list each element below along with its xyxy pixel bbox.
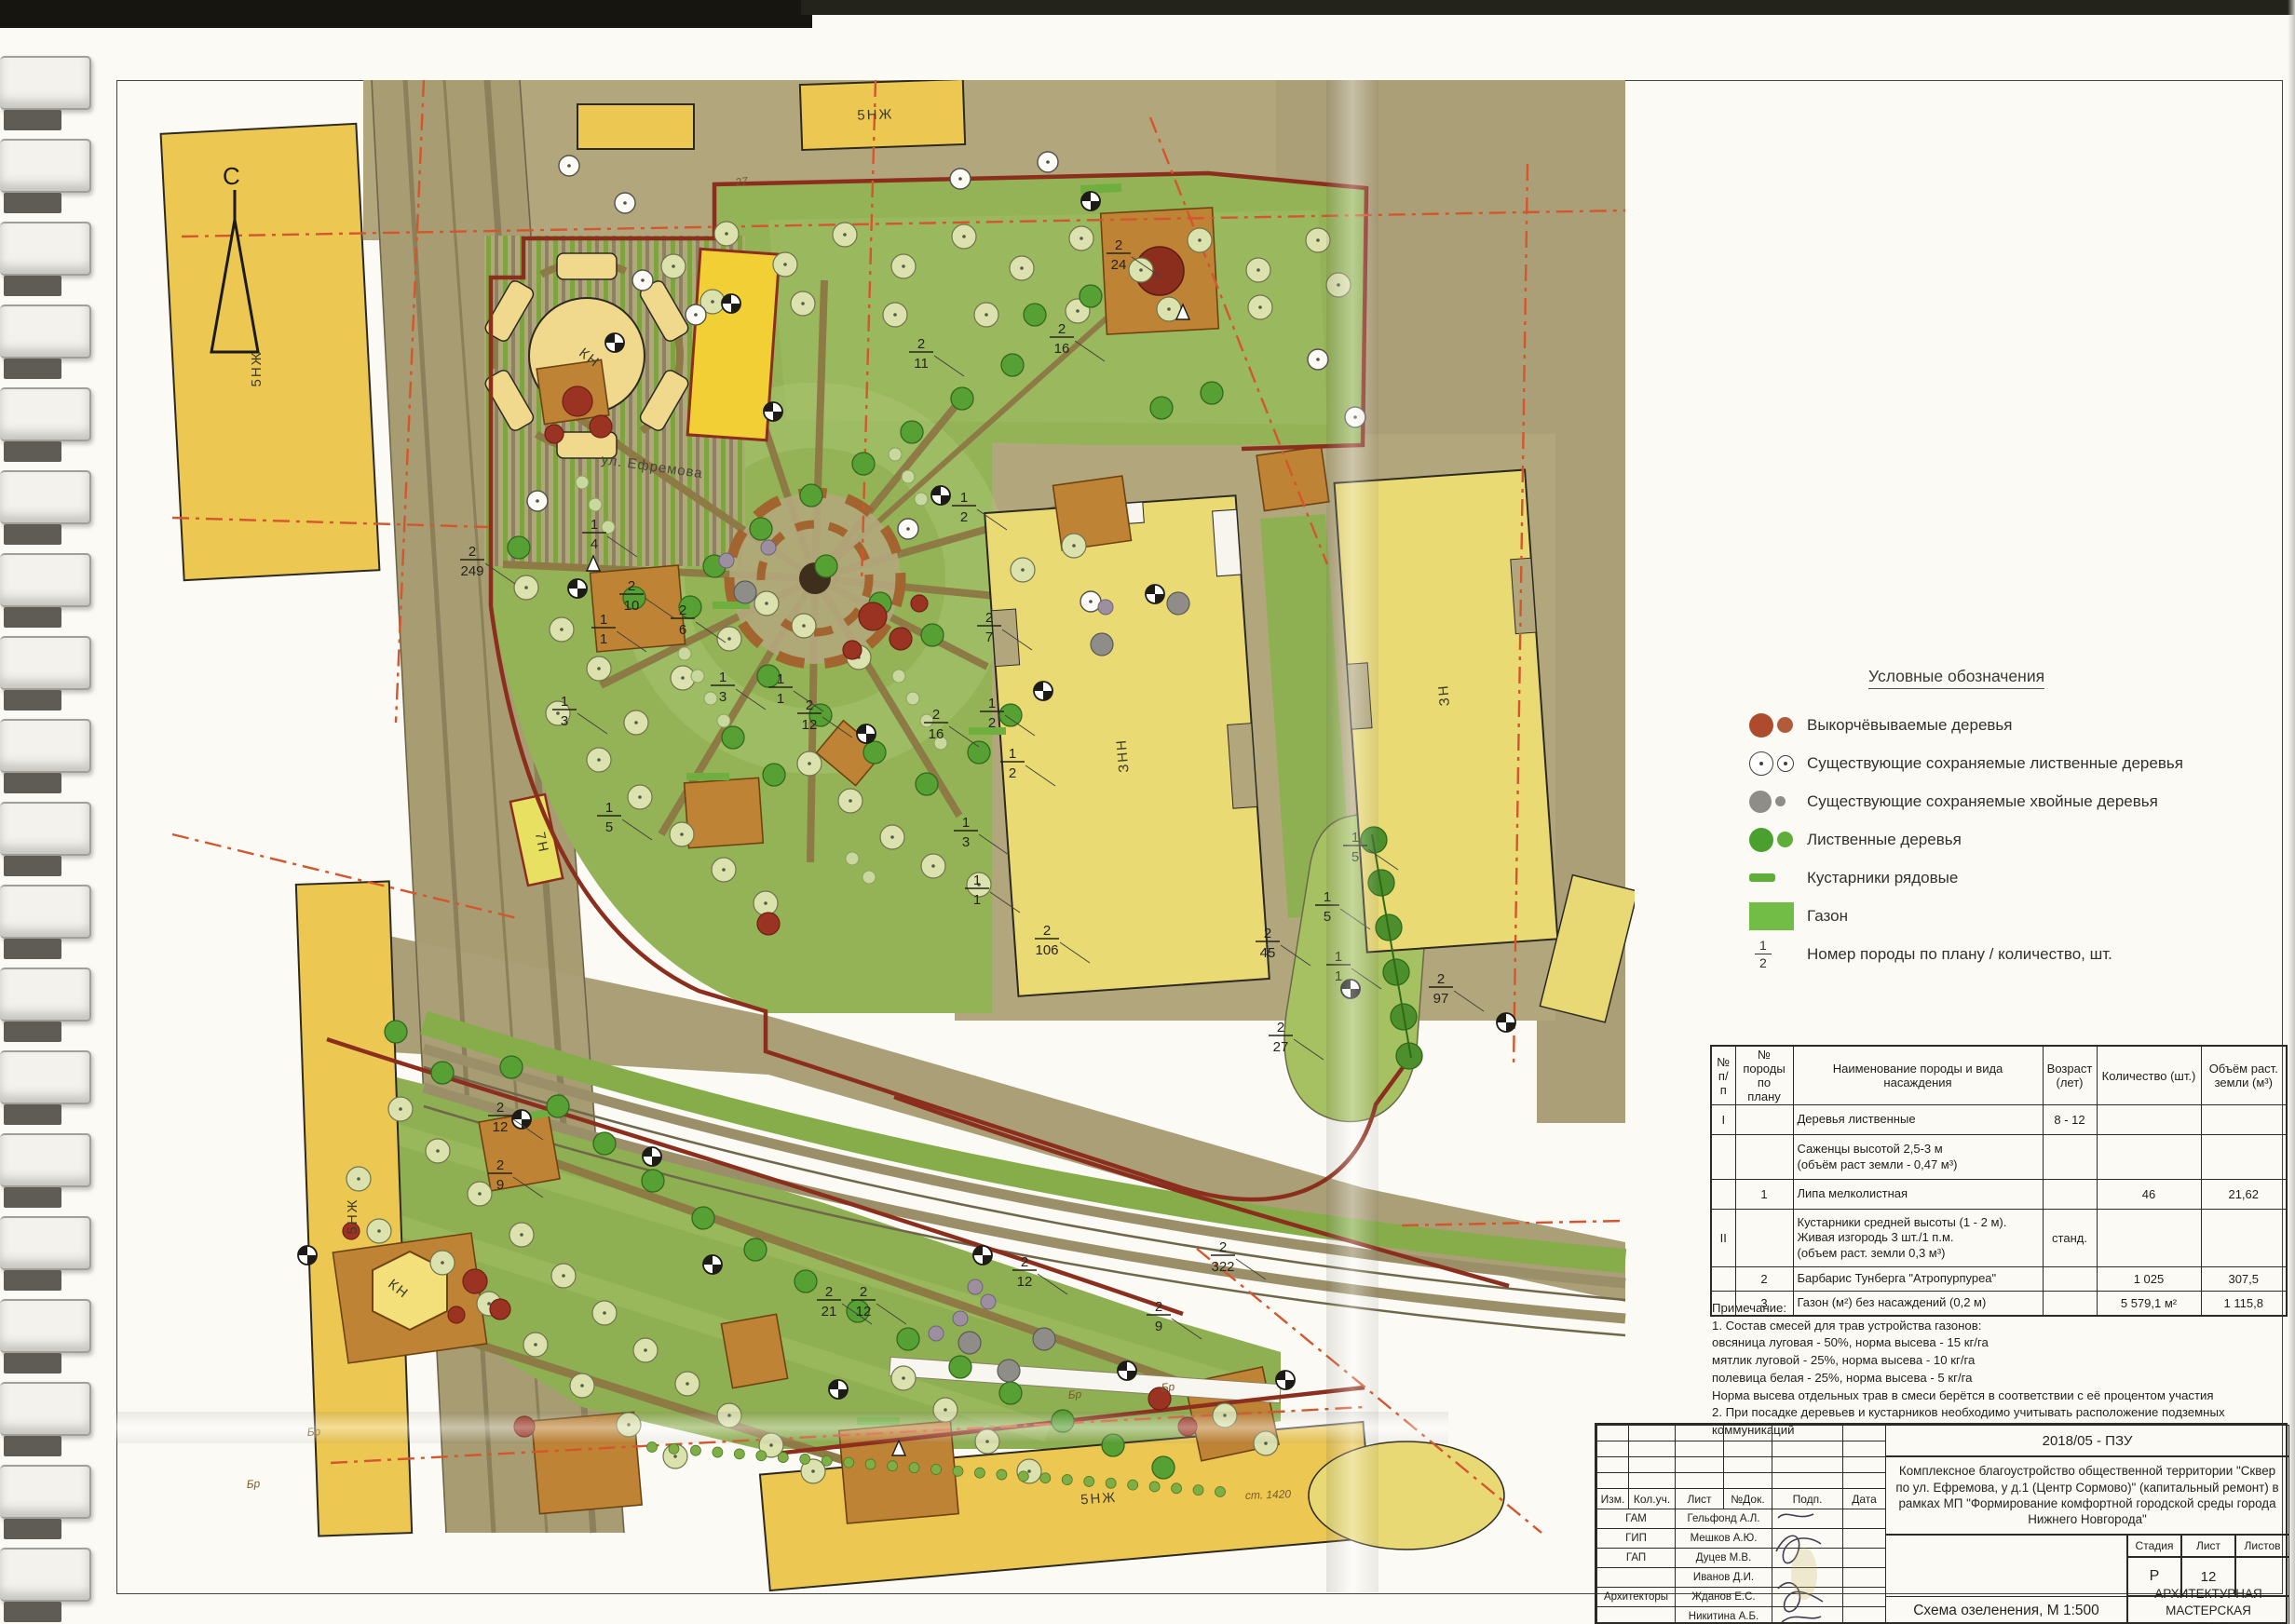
building-label: 5НЖ (1080, 1490, 1118, 1509)
benchmark-symbol (857, 724, 876, 743)
comb-loop (0, 968, 91, 1022)
table-cell: 21,62 (2201, 1180, 2287, 1210)
svg-text:1: 1 (605, 800, 613, 816)
hedge-symbol (909, 1463, 919, 1473)
deciduous-tree-symbol (385, 1021, 407, 1043)
table-cell (1711, 1135, 1735, 1180)
hedge-symbol (1128, 1480, 1138, 1490)
svg-text:2: 2 (960, 509, 968, 525)
svg-text:2: 2 (985, 610, 993, 626)
deciduous-tree-symbol (999, 704, 1022, 726)
deciduous-tree-symbol (1080, 285, 1102, 307)
benchmark-symbol (298, 1246, 317, 1265)
table-cell (2043, 1267, 2097, 1292)
table-cell: 307,5 (2201, 1267, 2287, 1292)
table-cell: 1 025 (2097, 1267, 2201, 1292)
bush-symbol (889, 448, 902, 461)
deciduous-tree-symbol (593, 1132, 616, 1155)
hedge-symbol (1172, 1483, 1182, 1494)
building-label: 5НЖ (857, 106, 894, 123)
table-cell (1735, 1135, 1793, 1180)
removed-trees-icon (1749, 713, 1807, 738)
sheet-label: Лист (2181, 1535, 2235, 1557)
deciduous-tree-symbol (508, 536, 530, 559)
empty-cell (1629, 1441, 1676, 1457)
hedge-symbol (1215, 1487, 1226, 1497)
table-cell: Кустарники средней высоты (1 - 2 м). Жив… (1793, 1210, 2043, 1267)
coniferous-tree-symbol (1167, 592, 1189, 615)
svg-text:21: 21 (822, 1304, 837, 1319)
shrub-row-icon (1749, 873, 1807, 882)
comb-loop (0, 1050, 91, 1104)
sign-date-cell (1843, 1568, 1886, 1588)
comb-slot (4, 1104, 61, 1125)
deciduous-tree-symbol (951, 387, 973, 410)
removed-tree-symbol (463, 1269, 487, 1293)
legend-title: Условные обозначения (1868, 667, 2044, 689)
notes-title: Примечание: (1712, 1300, 2247, 1318)
deciduous-tree-symbol (800, 484, 822, 507)
deciduous-tree-symbol (750, 518, 772, 540)
deciduous-tree-symbol (901, 421, 923, 443)
deciduous-tree-symbol (763, 764, 785, 786)
hedge-symbol (800, 1454, 810, 1464)
comb-slot (4, 1436, 61, 1456)
benchmark-symbol (931, 486, 950, 505)
comb-loop (0, 139, 91, 193)
column-header: Количество (шт.) (2097, 1046, 2201, 1105)
svg-text:2: 2 (679, 602, 686, 618)
column-header: № п/п (1711, 1046, 1735, 1105)
deciduous-tree-symbol (949, 1356, 971, 1378)
legend: Условные обозначения Выкорчёвываемые дер… (1749, 667, 2295, 973)
sign-column-header: Лист (1676, 1489, 1724, 1509)
benchmark-symbol (512, 1110, 531, 1129)
comb-slot (4, 359, 61, 379)
removed-tree-symbol (859, 602, 887, 630)
legend-items: Выкорчёвываемые деревьяСуществующие сохр… (1749, 706, 2295, 973)
sign-name: Иванов Д.И. (1676, 1568, 1772, 1588)
note-line: полевица белая - 25%, норма высева - 5 к… (1712, 1370, 2247, 1387)
empty-cell (1597, 1426, 1629, 1441)
legend-item-label: Газон (1807, 907, 1848, 926)
deciduous-tree-symbol (863, 741, 886, 764)
hedge-symbol (734, 1449, 744, 1459)
table-cell: Барбарис Тунберга "Атропурпуреа" (1793, 1267, 2043, 1292)
deciduous-tree-symbol (921, 624, 944, 646)
table-cell: 8 - 12 (2043, 1105, 2097, 1135)
benchmark-symbol (1081, 192, 1100, 210)
svg-text:27: 27 (1273, 1039, 1289, 1055)
bush-symbol (704, 692, 717, 705)
comb-slot (4, 1353, 61, 1374)
legend-item: Существующие сохраняемые хвойные деревья (1749, 782, 2295, 820)
lawn-icon (1749, 902, 1807, 930)
removed-tree-symbol (911, 595, 928, 612)
svg-text:1: 1 (973, 892, 981, 908)
benchmark-symbol (1118, 1361, 1136, 1380)
table-cell: Саженцы высотой 2,5-3 м (объём раст земл… (1793, 1135, 2043, 1180)
benchmark-symbol (1497, 1013, 1515, 1032)
bush-symbol (691, 670, 704, 683)
hedge-symbol (997, 1469, 1007, 1480)
plan-annotation: Бр (1067, 1387, 1082, 1401)
table-cell: I (1711, 1105, 1735, 1135)
table-cell: станд. (2043, 1210, 2097, 1267)
svg-text:1: 1 (962, 815, 970, 831)
bush-symbol (602, 521, 615, 534)
fold-crease (116, 1412, 1448, 1443)
hedge-symbol (1193, 1485, 1203, 1495)
empty-cell (1843, 1457, 1886, 1473)
legend-item-label: Существующие сохраняемые лиственные дере… (1807, 754, 2183, 773)
bush-symbol (953, 1311, 968, 1326)
comb-loop (0, 1216, 91, 1270)
svg-text:322: 322 (1211, 1259, 1234, 1275)
column-header: № породы по плану (1735, 1046, 1793, 1105)
sign-date-cell (1843, 1549, 1886, 1568)
drawing-title: Схема озеленения, М 1:500 (1885, 1596, 2127, 1624)
benchmark-symbol (605, 333, 624, 352)
svg-text:2: 2 (628, 578, 635, 594)
svg-text:45: 45 (1260, 945, 1276, 961)
table-cell (2201, 1105, 2287, 1135)
sign-date-cell (1843, 1529, 1886, 1549)
benchmark-symbol (703, 1255, 722, 1274)
benchmark-symbol (1146, 585, 1164, 603)
comb-slot (4, 276, 61, 296)
table-cell (1735, 1210, 1793, 1267)
comb-loop (0, 885, 91, 939)
hedge-symbol (1149, 1482, 1160, 1492)
removed-tree-symbol (843, 641, 862, 659)
hedge-symbol (1084, 1476, 1094, 1486)
benchmark-symbol (568, 579, 587, 598)
empty-cell (1597, 1457, 1629, 1473)
empty-cell (1843, 1426, 1886, 1441)
svg-text:1: 1 (561, 694, 568, 710)
coniferous-tree-symbol (998, 1360, 1020, 1382)
empty-cell (1629, 1473, 1676, 1489)
comb-loop (0, 553, 91, 607)
hedge-symbol (778, 1453, 788, 1463)
empty-cell (1676, 1473, 1724, 1489)
bush-symbol (678, 647, 691, 660)
deciduous-tree-symbol (1201, 382, 1223, 404)
deciduous-tree-symbol (547, 1095, 569, 1117)
table-row: 2Барбарис Тунберга "Атропурпуреа"1 02530… (1711, 1267, 2287, 1292)
hedge-symbol (713, 1447, 723, 1457)
comb-slot (4, 1519, 61, 1539)
benchmark-symbol (722, 294, 740, 313)
table-cell (1711, 1267, 1735, 1292)
svg-text:10: 10 (624, 598, 640, 614)
svg-text:3: 3 (962, 834, 970, 850)
svg-text:2: 2 (932, 707, 940, 723)
deciduous-tree-symbol (500, 1056, 523, 1078)
empty-cell (1629, 1457, 1676, 1473)
organization: АРХИТЕКТУРНАЯ МАСТЕРСКАЯ ННГАСУ (2127, 1596, 2289, 1624)
svg-text:7: 7 (985, 629, 993, 645)
project-description: Комплексное благоустройство общественной… (1885, 1456, 2289, 1535)
deciduous-tree-symbol (999, 1382, 1022, 1404)
comb-loop (0, 802, 91, 856)
empty-cell (1676, 1457, 1724, 1473)
comb-slot (4, 1022, 61, 1042)
legend-item: 12Номер породы по плану / количество, шт… (1749, 935, 2295, 973)
deciduous-tree-symbol (642, 1170, 664, 1192)
comb-slot (4, 1187, 61, 1208)
scanner-edge-strip (801, 0, 2295, 15)
empty-cell (1772, 1457, 1843, 1473)
comb-slot (4, 607, 61, 628)
comb-binding (0, 19, 112, 1624)
bush-symbol (862, 871, 876, 884)
existing-deciduous-trees-icon (1749, 751, 1807, 776)
svg-text:3: 3 (561, 713, 568, 729)
note-line: овсяница луговая - 50%, норма высева - 1… (1712, 1334, 2247, 1352)
sign-role: Архитекторы (1597, 1588, 1676, 1607)
deciduous-tree-symbol (744, 1238, 767, 1261)
svg-text:106: 106 (1035, 942, 1058, 958)
table-row: IIКустарники средней высоты (1 - 2 м). Ж… (1711, 1210, 2287, 1267)
plan-annotation: ст. 1420 (1245, 1487, 1292, 1502)
svg-text:2: 2 (1115, 237, 1122, 253)
hedge-symbol (974, 1468, 985, 1478)
svg-text:2: 2 (1219, 1239, 1227, 1255)
sign-date-cell (1843, 1588, 1886, 1607)
empty-cell (1724, 1426, 1772, 1441)
building-label: 5НЖ (249, 350, 265, 386)
coniferous-tree-symbol (1033, 1328, 1055, 1350)
svg-text:2: 2 (1021, 1254, 1028, 1270)
svg-text:3: 3 (719, 689, 727, 705)
legend-item: Существующие сохраняемые лиственные дере… (1749, 744, 2295, 782)
bush-symbol (906, 692, 919, 705)
bush-symbol (589, 498, 602, 511)
sign-name: Мешков А.Ю. (1676, 1529, 1772, 1549)
signatures (1771, 1509, 1843, 1624)
svg-text:6: 6 (679, 622, 686, 638)
central-plaza (729, 493, 901, 664)
empty-cell (1772, 1441, 1843, 1457)
svg-text:97: 97 (1433, 991, 1449, 1007)
svg-text:2: 2 (917, 336, 925, 352)
scanned-sheet: С ул. Ефремова 2249142101126131321211216… (0, 0, 2295, 1624)
svg-text:2: 2 (1155, 1299, 1162, 1315)
legend-item: Лиственные деревья (1749, 820, 2295, 859)
bush-symbol (968, 1279, 983, 1294)
hedge-symbol (822, 1455, 832, 1466)
deciduous-tree-symbol (968, 741, 990, 764)
sign-role: ГАП (1597, 1549, 1676, 1568)
svg-text:1: 1 (600, 612, 607, 628)
comb-loop (0, 387, 91, 441)
sign-name: Дуцев М.В. (1676, 1549, 1772, 1568)
coniferous-tree-symbol (958, 1332, 981, 1354)
hedge-symbol (669, 1443, 679, 1454)
comb-loop (0, 1382, 91, 1436)
sign-role: ГАМ (1597, 1509, 1676, 1529)
svg-text:2: 2 (825, 1284, 833, 1300)
table-row: 1Липа мелколистная4621,62 (1711, 1180, 2287, 1210)
svg-text:1: 1 (600, 631, 607, 647)
empty-cell (1724, 1473, 1772, 1489)
svg-text:1: 1 (988, 696, 996, 711)
svg-text:1: 1 (960, 490, 968, 506)
svg-text:2: 2 (1009, 765, 1016, 781)
benchmark-symbol (829, 1380, 848, 1399)
sign-date-cell (1843, 1509, 1886, 1529)
svg-text:2: 2 (988, 715, 996, 731)
comb-loop (0, 222, 91, 276)
svg-text:1: 1 (719, 670, 727, 685)
table-cell: Деревья лиственные (1793, 1105, 2043, 1135)
svg-text:2: 2 (860, 1284, 867, 1300)
table-cell: Липа мелколистная (1793, 1180, 2043, 1210)
table-row: Саженцы высотой 2,5-3 м (объём раст земл… (1711, 1135, 2287, 1180)
bush-symbol (929, 1326, 944, 1341)
svg-text:1: 1 (973, 873, 981, 888)
comb-loop (0, 1465, 91, 1519)
svg-text:2: 2 (496, 1100, 504, 1116)
legend-item-label: Лиственные деревья (1807, 831, 1962, 849)
comb-loop (0, 719, 91, 773)
table-cell: 2 (1735, 1267, 1793, 1292)
benchmark-symbol (1034, 682, 1052, 700)
sign-name: Гельфонд А.Л. (1676, 1509, 1772, 1529)
empty-cell (1724, 1441, 1772, 1457)
empty-cell (1843, 1473, 1886, 1489)
svg-text:2: 2 (1277, 1020, 1284, 1035)
table-cell: 46 (2097, 1180, 2201, 1210)
table-cell (2201, 1210, 2287, 1267)
legend-item-label: Номер породы по плану / количество, шт. (1807, 945, 2112, 964)
empty-cell (1676, 1441, 1724, 1457)
empty-cell (1597, 1473, 1629, 1489)
deciduous-tree-symbol (794, 1270, 817, 1292)
hedge-symbol (647, 1442, 658, 1453)
sign-date-cell (1843, 1607, 1886, 1624)
legend-item-label: Кустарники рядовые (1807, 869, 1958, 887)
hedge-symbol (756, 1451, 767, 1461)
empty-cell (1772, 1426, 1843, 1441)
svg-text:16: 16 (929, 726, 944, 742)
building-label: ЗН (1435, 683, 1453, 707)
benchmark-symbol (1276, 1371, 1295, 1389)
sign-name: Жданов Е.С. (1676, 1588, 1772, 1607)
comb-loop (0, 470, 91, 524)
comb-loop (0, 1133, 91, 1187)
removed-tree-symbol (490, 1299, 510, 1319)
svg-text:249: 249 (460, 563, 483, 579)
bush-symbol (915, 493, 928, 506)
svg-text:16: 16 (1054, 341, 1070, 357)
svg-text:12: 12 (493, 1119, 509, 1135)
legend-item-label: Существующие сохраняемые хвойные деревья (1807, 792, 2158, 811)
hedge-symbol (1062, 1475, 1072, 1485)
benchmark-symbol (973, 1246, 992, 1265)
bush-symbol (892, 670, 905, 683)
deciduous-tree-symbol (1150, 397, 1173, 419)
coniferous-tree-symbol (1091, 633, 1113, 656)
sheets-label: Листов (2235, 1535, 2289, 1557)
hedge-symbol (931, 1465, 942, 1475)
comb-slot (4, 773, 61, 793)
empty-cell (1724, 1457, 1772, 1473)
svg-text:1: 1 (591, 517, 598, 533)
hedge-symbol (690, 1445, 700, 1455)
sign-role (1597, 1607, 1676, 1624)
scanner-edge-strip (0, 0, 812, 28)
deciduous-trees-icon (1749, 828, 1807, 852)
benchmark-symbol (643, 1147, 661, 1166)
bush-symbol (846, 852, 859, 865)
legend-item-label: Выкорчёвываемые деревья (1807, 716, 2013, 735)
svg-text:11: 11 (914, 356, 929, 372)
plan-annotation: Бр (246, 1477, 261, 1491)
svg-text:1: 1 (777, 691, 784, 707)
deciduous-tree-symbol (1001, 354, 1024, 376)
empty-cell (1597, 1441, 1629, 1457)
building-label: ЗНН (1113, 738, 1132, 773)
notes: Примечание: 1. Состав смесей для трав ус… (1712, 1300, 2247, 1440)
legend-item: Выкорчёвываемые деревья (1749, 706, 2295, 744)
legend-item: Газон (1749, 897, 2295, 935)
site-plan: С ул. Ефремова 2249142101126131321211216… (116, 80, 1635, 1594)
svg-text:9: 9 (1155, 1319, 1162, 1334)
note-line: Норма высева отдельных трав в смеси берё… (1712, 1387, 2247, 1405)
bush-symbol (902, 470, 915, 483)
removed-tree-symbol (545, 425, 564, 443)
column-header: Наименование породы и вида насаждения (1793, 1046, 2043, 1105)
table-cell (1735, 1105, 1793, 1135)
sign-name: Никитина А.Б. (1676, 1607, 1772, 1624)
empty-cell (1676, 1426, 1724, 1441)
comb-loop (0, 1548, 91, 1602)
stage-label: Стадия (2127, 1535, 2181, 1557)
empty-cell (1772, 1473, 1843, 1489)
svg-text:1: 1 (777, 671, 784, 687)
comb-loop (0, 56, 91, 110)
svg-text:С: С (223, 162, 240, 190)
comb-slot (4, 1270, 61, 1291)
deciduous-tree-symbol (692, 1207, 714, 1229)
deciduous-tree-symbol (722, 726, 744, 749)
removed-tree-symbol (563, 386, 592, 416)
table-cell: II (1711, 1210, 1735, 1267)
deciduous-tree-symbol (852, 453, 875, 475)
table-cell (1711, 1180, 1735, 1210)
svg-text:12: 12 (1017, 1274, 1033, 1290)
sign-column-header: Изм. (1597, 1489, 1629, 1509)
sign-column-header: Дата (1843, 1489, 1886, 1509)
hedge-symbol (1106, 1478, 1116, 1488)
comb-slot (4, 690, 61, 710)
removed-tree-symbol (590, 415, 612, 438)
comb-slot (4, 1602, 61, 1622)
column-header: Объём раст. земли (м³) (2201, 1046, 2287, 1105)
deciduous-tree-symbol (897, 1328, 919, 1350)
hedge-symbol (1018, 1471, 1028, 1482)
comb-loop (0, 1299, 91, 1353)
hedge-symbol (953, 1466, 963, 1476)
svg-text:4: 4 (591, 536, 598, 552)
hedge-symbol (888, 1461, 898, 1471)
svg-text:12: 12 (856, 1304, 872, 1319)
bush-symbol (576, 476, 589, 489)
comb-slot (4, 524, 61, 545)
